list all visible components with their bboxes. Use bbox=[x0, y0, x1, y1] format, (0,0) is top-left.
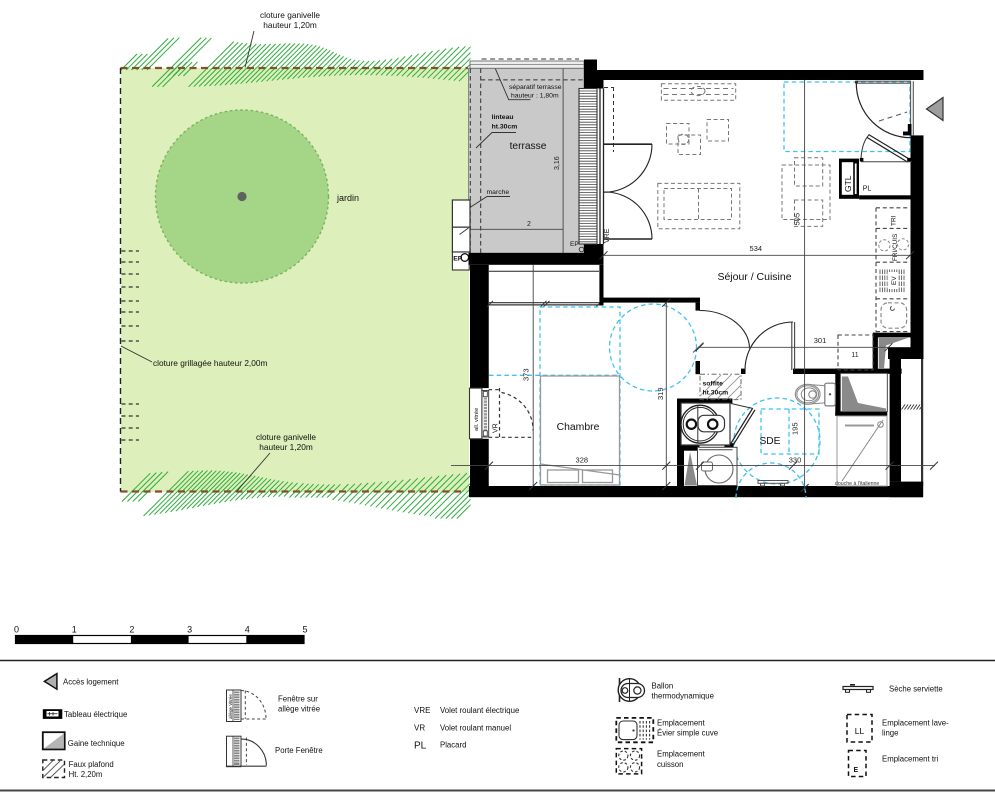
svg-text:cuisson: cuisson bbox=[657, 760, 683, 769]
svg-text:Volet roulant manuel: Volet roulant manuel bbox=[440, 724, 511, 733]
svg-text:hauteur 1,20m: hauteur 1,20m bbox=[259, 442, 313, 452]
svg-text:allège Vitrée: allège Vitrée bbox=[228, 694, 233, 719]
svg-text:0: 0 bbox=[14, 625, 19, 635]
svg-text:Séjour / Cuisine: Séjour / Cuisine bbox=[717, 271, 791, 283]
svg-text:Faux plafond: Faux plafond bbox=[69, 760, 114, 769]
svg-text:soffite: soffite bbox=[703, 381, 724, 388]
svg-text:SDE: SDE bbox=[760, 436, 781, 447]
svg-text:Volet roulant électrique: Volet roulant électrique bbox=[440, 706, 519, 715]
svg-text:EV: EV bbox=[891, 276, 898, 285]
svg-text:195: 195 bbox=[791, 422, 800, 435]
svg-text:2: 2 bbox=[527, 221, 531, 228]
svg-text:Sèche serviette: Sèche serviette bbox=[889, 685, 943, 694]
svg-text:Gaine technique: Gaine technique bbox=[68, 739, 125, 748]
svg-text:534: 534 bbox=[750, 244, 763, 253]
svg-text:Ballon: Ballon bbox=[652, 682, 674, 691]
svg-text:EP: EP bbox=[570, 241, 579, 248]
svg-text:328: 328 bbox=[576, 456, 589, 465]
svg-text:ht.30cm: ht.30cm bbox=[703, 390, 729, 397]
svg-text:3,16: 3,16 bbox=[554, 156, 561, 170]
svg-text:TRI: TRI bbox=[891, 215, 898, 226]
svg-text:Emplacement: Emplacement bbox=[657, 719, 706, 728]
svg-text:373: 373 bbox=[522, 368, 531, 381]
svg-text:319: 319 bbox=[656, 387, 665, 400]
svg-text:E: E bbox=[854, 767, 859, 774]
svg-text:5: 5 bbox=[302, 625, 307, 635]
svg-text:Chambre: Chambre bbox=[557, 422, 600, 433]
svg-text:GTL: GTL bbox=[843, 175, 853, 192]
svg-text:VRE: VRE bbox=[604, 228, 611, 243]
svg-text:Accès logement: Accès logement bbox=[63, 678, 119, 687]
svg-text:Emplacement lave-: Emplacement lave- bbox=[882, 719, 949, 728]
svg-text:hauteur 1,20m: hauteur 1,20m bbox=[263, 20, 317, 30]
svg-text:1: 1 bbox=[72, 625, 77, 635]
svg-text:hauteur : 1,80m: hauteur : 1,80m bbox=[511, 93, 559, 100]
svg-text:VRE: VRE bbox=[414, 706, 430, 715]
svg-text:505: 505 bbox=[793, 213, 802, 226]
svg-text:Placard: Placard bbox=[440, 741, 466, 750]
svg-text:cloture grillagée hauteur 2,00: cloture grillagée hauteur 2,00m bbox=[153, 358, 267, 368]
svg-text:VR: VR bbox=[414, 724, 425, 733]
svg-text:Emplacement: Emplacement bbox=[657, 750, 706, 759]
svg-text:Porte Fenêtre: Porte Fenêtre bbox=[275, 746, 323, 755]
svg-text:linteau: linteau bbox=[492, 114, 514, 121]
svg-text:allège vitrée: allège vitrée bbox=[278, 705, 320, 714]
svg-text:marche: marche bbox=[487, 189, 510, 196]
svg-text:Ht. 2,20m: Ht. 2,20m bbox=[69, 770, 103, 779]
svg-text:301: 301 bbox=[814, 336, 827, 345]
svg-text:PL: PL bbox=[863, 186, 872, 193]
svg-text:Évier simple cuve: Évier simple cuve bbox=[657, 729, 718, 738]
svg-text:11: 11 bbox=[851, 352, 858, 359]
svg-text:4: 4 bbox=[245, 625, 250, 635]
svg-text:VR: VR bbox=[493, 423, 500, 433]
svg-text:all. vitrée: all. vitrée bbox=[474, 408, 480, 431]
svg-text:ht.30cm: ht.30cm bbox=[492, 124, 518, 131]
svg-text:FRI/CUIS: FRI/CUIS bbox=[892, 234, 899, 261]
svg-text:Tableau électrique: Tableau électrique bbox=[64, 710, 127, 719]
svg-text:PL: PL bbox=[414, 741, 427, 752]
svg-text:thermodynamique: thermodynamique bbox=[652, 692, 714, 701]
svg-text:douche à l'italienne: douche à l'italienne bbox=[835, 481, 879, 487]
svg-text:Emplacement tri: Emplacement tri bbox=[882, 755, 939, 764]
svg-text:jardin: jardin bbox=[336, 193, 359, 203]
svg-text:Fenêtre sur: Fenêtre sur bbox=[278, 695, 318, 704]
svg-text:2: 2 bbox=[129, 625, 134, 635]
svg-text:cloture ganivelle: cloture ganivelle bbox=[256, 432, 316, 442]
svg-text:séparatif terrasse: séparatif terrasse bbox=[509, 84, 562, 91]
svg-text:linge: linge bbox=[882, 729, 898, 738]
svg-text:LL: LL bbox=[855, 726, 865, 736]
svg-text:terrasse: terrasse bbox=[510, 141, 547, 152]
svg-text:3: 3 bbox=[187, 625, 192, 635]
svg-text:330: 330 bbox=[789, 456, 802, 465]
svg-text:cloture ganivelle: cloture ganivelle bbox=[260, 10, 320, 20]
